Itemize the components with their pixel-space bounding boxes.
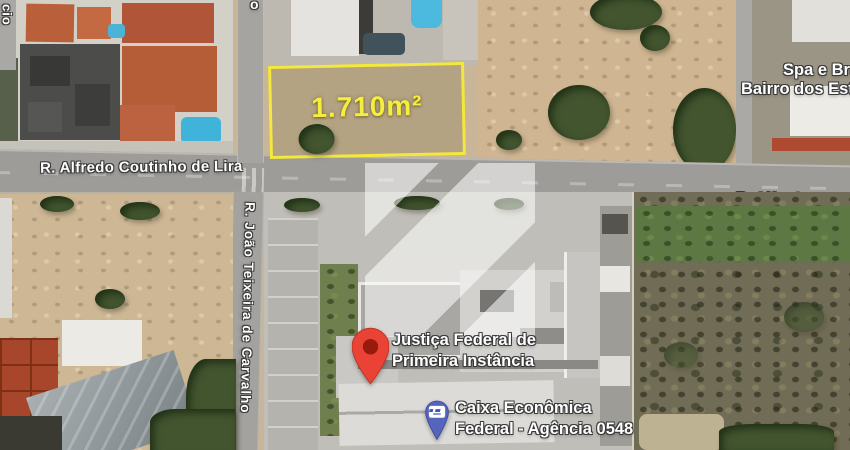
caixa-label-line2: Federal - Agência 0548 (455, 419, 633, 440)
vacant-dirt-lot (478, 0, 736, 170)
street-label-main: R. Alfredo Coutinho de Lira (40, 158, 243, 179)
cross-street-upper (237, 0, 264, 163)
block-above-plot (263, 0, 478, 66)
walled-sand-lot (0, 192, 233, 450)
street-label-fragment-left: cio (0, 4, 14, 26)
tree-cluster (673, 88, 736, 172)
justica-label-line2: Primeira Instância (392, 351, 536, 372)
parked-car (363, 33, 405, 55)
bush (640, 25, 670, 51)
bank-pin-icon[interactable] (424, 399, 450, 442)
tree-cluster (719, 424, 834, 450)
bush (120, 202, 160, 220)
house-roof-dark (20, 44, 120, 140)
scrub-lot (632, 192, 850, 450)
bush (664, 342, 698, 368)
bush (496, 130, 522, 150)
justica-label-line1: Justiça Federal de (392, 330, 536, 351)
dark-structure (0, 416, 62, 450)
bush (548, 85, 610, 140)
street-label-vertical: R. João Teixeira de Carvalho (235, 202, 257, 447)
house-roof (122, 46, 217, 112)
district-label-line2: Bairro dos Esta (741, 79, 850, 100)
building-white (792, 0, 850, 42)
building-white (62, 320, 142, 366)
bush (394, 196, 440, 210)
hedge (0, 58, 18, 143)
district-label[interactable]: Spa e Bra (783, 60, 850, 81)
residential-block (0, 0, 233, 163)
concrete-pad (443, 0, 478, 60)
bush (784, 302, 824, 332)
building-white (291, 0, 359, 56)
plot-area-label: 1.710m² (311, 89, 423, 123)
justica-federal-label[interactable]: Justiça Federal de Primeira Instância (392, 330, 536, 372)
street-label-fragment-top: o (250, 0, 259, 14)
house-roof (772, 138, 850, 151)
house-roof (122, 3, 214, 43)
bush (494, 198, 524, 210)
house-roof (26, 4, 75, 43)
grass-strip (636, 206, 850, 262)
caixa-label[interactable]: Caixa Econômica Federal - Agência 0548 (455, 398, 633, 440)
plot-highlight[interactable]: 1.710m² (268, 62, 466, 159)
bush (95, 289, 125, 309)
swimming-pool (181, 117, 221, 144)
caixa-label-line1: Caixa Econômica (455, 398, 633, 419)
bush (40, 196, 74, 212)
district-label-2[interactable]: Bairro dos Esta (741, 79, 850, 100)
tree-cluster (150, 409, 235, 450)
swimming-pool (411, 0, 442, 28)
bush (298, 124, 335, 155)
building-white-edge (0, 198, 12, 318)
swimming-pool (108, 24, 125, 38)
sand-patch (639, 414, 724, 450)
parking-strip (268, 218, 318, 450)
red-map-pin-icon[interactable] (352, 327, 389, 385)
district-label-line1: Spa e Bra (783, 60, 850, 81)
house-roof (77, 7, 111, 39)
satellite-map[interactable]: cio Spa e Bra Bairro dos Esta R. Alfredo… (0, 0, 850, 450)
house-roof (120, 105, 175, 143)
bush (284, 198, 320, 212)
